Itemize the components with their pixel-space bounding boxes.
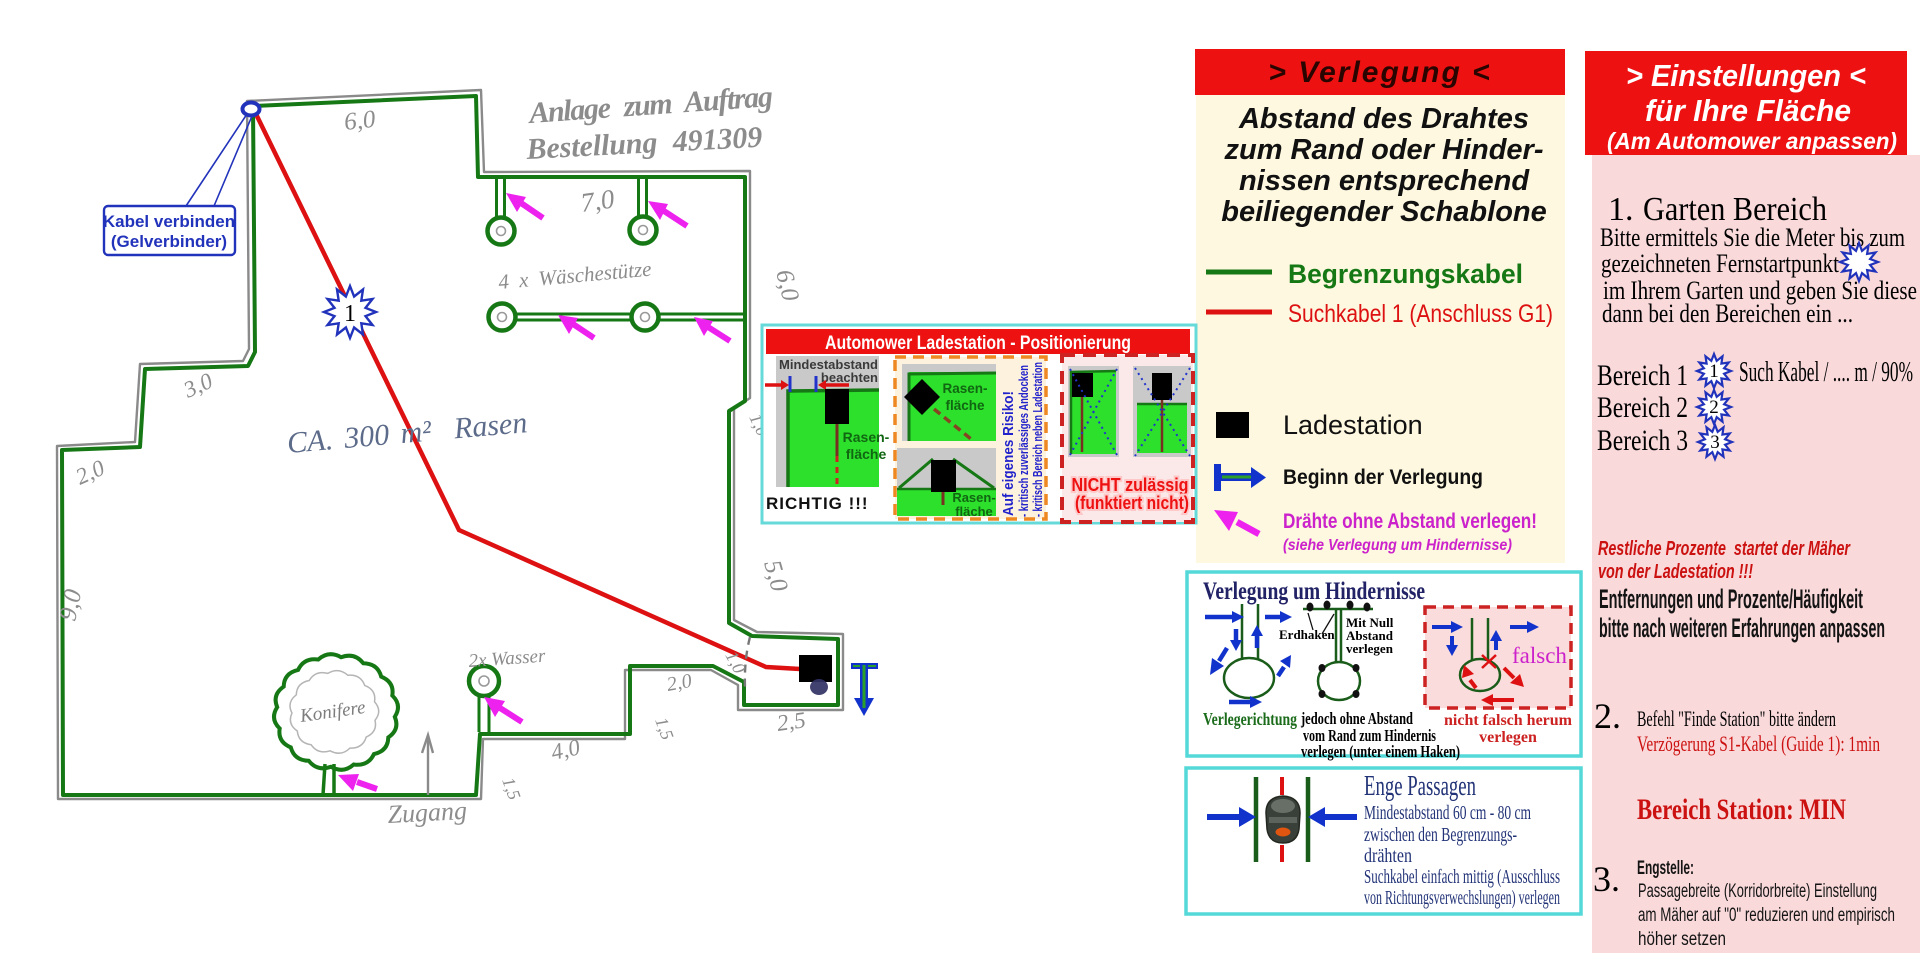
svg-text:1,5: 1,5 xyxy=(498,775,524,803)
svg-text:3.: 3. xyxy=(1593,859,1620,899)
svg-text:Such Kabel / .... m / 90%: Such Kabel / .... m / 90% xyxy=(1739,357,1913,388)
svg-text:zum Rand oder Hinder-: zum Rand oder Hinder- xyxy=(1223,134,1543,166)
svg-text:6,0: 6,0 xyxy=(343,106,377,136)
svg-text:verlegen: verlegen xyxy=(1479,729,1537,746)
svg-text:Abstand des Drahtes: Abstand des Drahtes xyxy=(1238,103,1529,135)
svg-text:2.: 2. xyxy=(1594,696,1621,736)
svg-text:Rasen-: Rasen- xyxy=(843,429,890,445)
svg-text:nissen entsprechend: nissen entsprechend xyxy=(1239,165,1530,197)
svg-text:am Mäher auf "0" reduzieren un: am Mäher auf "0" reduzieren und empirisc… xyxy=(1638,905,1895,926)
svg-text:zwischen den Begrenzungs-: zwischen den Begrenzungs- xyxy=(1364,824,1517,846)
svg-text:2,0: 2,0 xyxy=(665,670,693,696)
svg-text:(funktiert nicht): (funktiert nicht) xyxy=(1075,493,1189,513)
svg-text:9,0: 9,0 xyxy=(54,587,87,624)
svg-text:Beginn der Verlegung: Beginn der Verlegung xyxy=(1283,466,1483,489)
svg-text:Rasen-: Rasen- xyxy=(952,490,995,505)
svg-text:drähten: drähten xyxy=(1364,845,1412,867)
svg-text:(siehe Verlegung um Hinderniss: (siehe Verlegung um Hindernisse) xyxy=(1283,537,1512,554)
svg-text:Begrenzungskabel: Begrenzungskabel xyxy=(1288,259,1523,289)
svg-text:Rasen-: Rasen- xyxy=(942,381,987,396)
svg-text:Befehl "Finde Station" bitte ä: Befehl "Finde Station" bitte ändern xyxy=(1637,706,1836,731)
svg-text:Erdhaken: Erdhaken xyxy=(1279,627,1335,642)
svg-text:Bereich 1: Bereich 1 xyxy=(1597,359,1688,392)
svg-text:für Ihre Fläche: für Ihre Fläche xyxy=(1645,93,1851,128)
svg-text:1: 1 xyxy=(1709,361,1719,382)
svg-text:Auf eigenes Risiko!: Auf eigenes Risiko! xyxy=(1001,391,1017,516)
svg-text:beiliegender Schablone: beiliegender Schablone xyxy=(1221,196,1547,228)
svg-text:5,0: 5,0 xyxy=(758,557,793,595)
svg-text:nicht falsch herum: nicht falsch herum xyxy=(1444,712,1573,729)
svg-text:fläche: fläche xyxy=(945,398,985,413)
svg-text:verlegen: verlegen xyxy=(1346,641,1394,656)
svg-text:3: 3 xyxy=(1710,432,1720,453)
svg-text:fläche: fläche xyxy=(955,504,993,519)
svg-text:(Gelverbinder): (Gelverbinder) xyxy=(111,232,227,251)
svg-text:- kritisch zuverlässiges Andoc: - kritisch zuverlässiges Andocken xyxy=(1016,365,1031,517)
svg-text:Bereich Station: MIN: Bereich Station: MIN xyxy=(1637,793,1846,826)
svg-text:4 x Wäschestütze: 4 x Wäschestütze xyxy=(497,257,652,294)
svg-text:3,0: 3,0 xyxy=(179,368,217,403)
svg-text:fläche: fläche xyxy=(846,446,887,462)
svg-text:4,0: 4,0 xyxy=(549,734,583,765)
svg-text:(Am Automower anpassen): (Am Automower anpassen) xyxy=(1607,128,1897,154)
svg-text:6,0: 6,0 xyxy=(770,267,804,304)
svg-text:NICHT zulässig: NICHT zulässig xyxy=(1072,475,1189,495)
svg-text:Bereich 2: Bereich 2 xyxy=(1597,391,1688,424)
svg-text:von Richtungsverwechslungen) v: von Richtungsverwechslungen) verlegen xyxy=(1364,887,1560,909)
svg-text:Suchkabel 1 (Anschluss G1): Suchkabel 1 (Anschluss G1) xyxy=(1288,300,1553,328)
svg-text:Bereich 3: Bereich 3 xyxy=(1597,424,1688,457)
svg-text:2,5: 2,5 xyxy=(775,707,807,736)
svg-text:2,0: 2,0 xyxy=(72,455,109,490)
svg-text:> Verlegung <: > Verlegung < xyxy=(1268,56,1491,89)
svg-text:Automower Ladestation - Positi: Automower Ladestation - Positionierung xyxy=(825,333,1131,354)
svg-text:höher setzen: höher setzen xyxy=(1638,929,1726,950)
svg-text:1: 1 xyxy=(344,301,356,327)
svg-text:von der Ladestation !!!: von der Ladestation !!! xyxy=(1598,561,1753,583)
svg-text:2: 2 xyxy=(1709,397,1719,418)
svg-text:Ladestation: Ladestation xyxy=(1283,410,1423,440)
svg-text:Drähte ohne Abstand verlegen!: Drähte ohne Abstand verlegen! xyxy=(1283,510,1537,533)
svg-text:1,5: 1,5 xyxy=(651,715,677,743)
svg-text:Entfernungen und Prozente/Häuf: Entfernungen und Prozente/Häufigkeit xyxy=(1599,584,1863,614)
svg-text:verlegen (unter einem Haken): verlegen (unter einem Haken) xyxy=(1301,742,1460,761)
svg-text:Restliche Prozente startet de: Restliche Prozente startet der Mäher xyxy=(1598,538,1851,560)
svg-text:dann bei den Bereichen ein ...: dann bei den Bereichen ein ... xyxy=(1602,299,1853,328)
svg-text:Verzögerung S1-Kabel (Guide 1): Verzögerung S1-Kabel (Guide 1): 1min xyxy=(1637,731,1880,756)
svg-text:- kritisch Bereich neben Lades: - kritisch Bereich neben Ladestation xyxy=(1030,362,1045,517)
svg-text:RICHTIG !!!: RICHTIG !!! xyxy=(766,494,869,513)
svg-text:Verlegung um Hindernisse: Verlegung um Hindernisse xyxy=(1203,578,1425,605)
svg-text:bitte nach weiteren Erfahrunge: bitte nach weiteren Erfahrungen anpassen xyxy=(1599,613,1885,643)
svg-text:Zugang: Zugang xyxy=(387,796,468,829)
svg-text:7,0: 7,0 xyxy=(579,183,617,217)
svg-text:falsch: falsch xyxy=(1512,643,1567,668)
svg-text:Enge Passagen: Enge Passagen xyxy=(1364,771,1476,802)
svg-text:2x Wasser: 2x Wasser xyxy=(468,646,547,672)
svg-text:Kabel verbinden: Kabel verbinden xyxy=(103,212,235,231)
svg-text:> Einstellungen <: > Einstellungen < xyxy=(1626,58,1866,93)
svg-text:Mindestabstand 60 cm - 80 cm: Mindestabstand 60 cm - 80 cm xyxy=(1364,802,1531,824)
svg-text:Engstelle:: Engstelle: xyxy=(1637,858,1694,879)
svg-text:Suchkabel einfach mittig (Auss: Suchkabel einfach mittig (Ausschluss xyxy=(1364,866,1560,888)
svg-text:beachten: beachten xyxy=(821,370,878,385)
svg-text:Passagebreite (Korridorbreite): Passagebreite (Korridorbreite) Einstellu… xyxy=(1638,881,1877,902)
svg-text:CA. 300 m² Rasen: CA. 300 m² Rasen xyxy=(286,406,529,460)
svg-text:gezeichneten Fernstartpunkt: gezeichneten Fernstartpunkt xyxy=(1601,249,1840,278)
svg-text:Verlegerichtung: Verlegerichtung xyxy=(1203,709,1297,729)
